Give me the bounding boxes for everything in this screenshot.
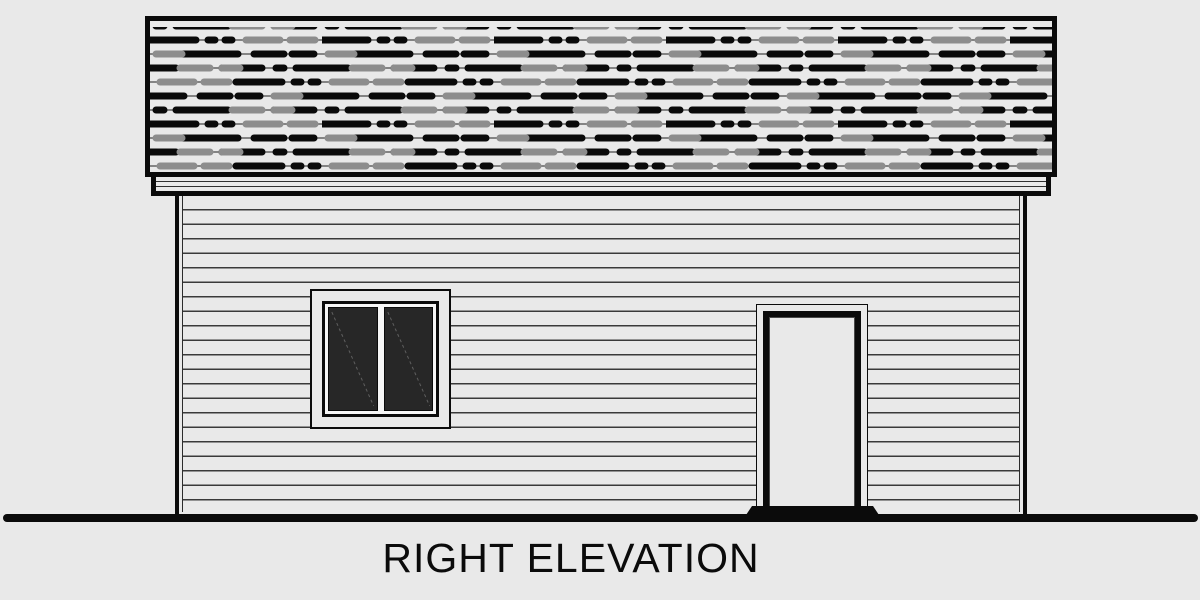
fascia-board (151, 177, 1051, 196)
ground-line (3, 514, 1198, 522)
shingle-pattern (150, 27, 1052, 173)
window (310, 289, 451, 429)
entry-door-trim (756, 304, 868, 508)
siding-lines (182, 196, 1020, 512)
window-pane-right (384, 307, 434, 411)
elevation-drawing-canvas: RIGHT ELEVATION (0, 0, 1200, 600)
shingled-roof (145, 16, 1057, 177)
pane-reflection-icon (385, 308, 433, 410)
door-slab (769, 317, 855, 508)
lap-siding-wall (175, 196, 1027, 518)
window-pane-left (328, 307, 378, 411)
pane-reflection-icon (329, 308, 377, 410)
door-frame (763, 311, 861, 508)
window-sash (322, 301, 439, 417)
elevation-title: RIGHT ELEVATION (382, 535, 759, 582)
